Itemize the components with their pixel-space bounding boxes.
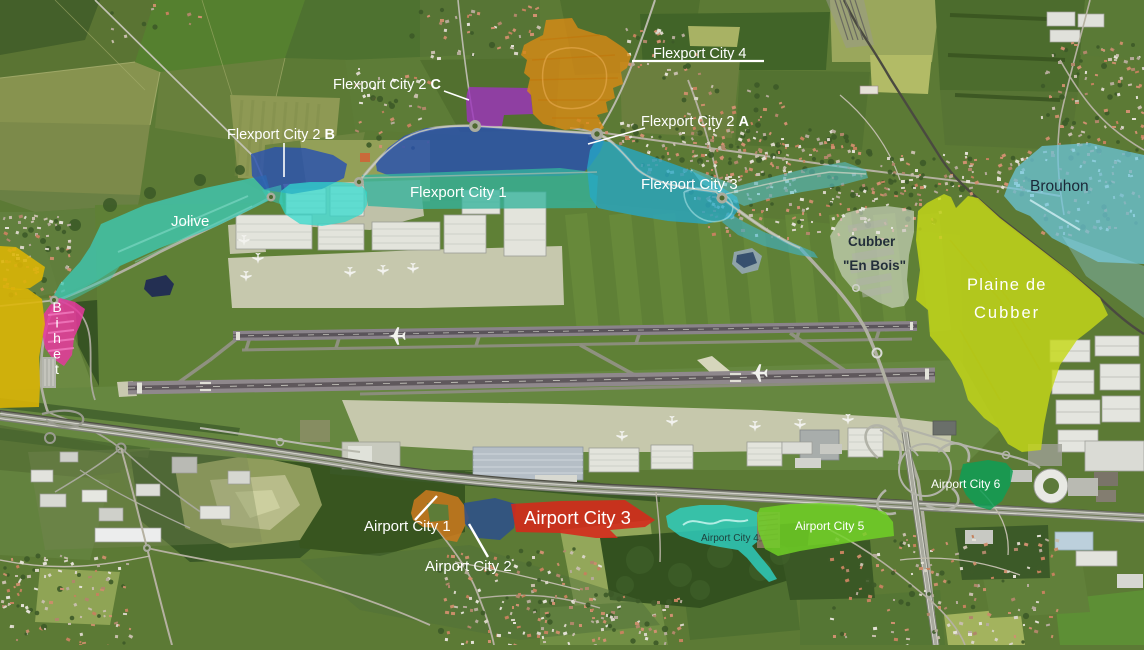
svg-text:Airport City 5: Airport City 5: [795, 519, 865, 533]
svg-text:Cubber: Cubber: [974, 304, 1040, 322]
svg-text:B: B: [52, 299, 61, 315]
svg-text:Jolive: Jolive: [171, 213, 209, 230]
svg-text:t: t: [55, 361, 59, 377]
svg-text:Flexport City 4: Flexport City 4: [653, 46, 746, 62]
svg-text:Flexport City 2 A: Flexport City 2 A: [641, 114, 750, 130]
svg-text:Airport City 2: Airport City 2: [425, 558, 512, 575]
svg-text:Airport City 6: Airport City 6: [931, 477, 1001, 491]
svg-text:Flexport City 2 B: Flexport City 2 B: [227, 127, 335, 143]
svg-text:e: e: [53, 346, 61, 362]
svg-text:h: h: [53, 330, 61, 346]
svg-text:"En Bois": "En Bois": [843, 258, 906, 273]
svg-text:Flexport City 1: Flexport City 1: [410, 184, 507, 201]
svg-text:Cubber: Cubber: [848, 234, 896, 249]
svg-text:Airport City 4: Airport City 4: [701, 533, 759, 544]
svg-text:i: i: [55, 315, 58, 331]
svg-text:Airport City 3: Airport City 3: [524, 507, 631, 528]
svg-text:Flexport City 3: Flexport City 3: [641, 176, 738, 193]
svg-text:Airport City 1: Airport City 1: [364, 518, 451, 535]
svg-text:Flexport City 2 C: Flexport City 2 C: [333, 77, 442, 93]
svg-text:Plaine de: Plaine de: [967, 276, 1047, 294]
svg-text:Brouhon: Brouhon: [1030, 178, 1089, 195]
